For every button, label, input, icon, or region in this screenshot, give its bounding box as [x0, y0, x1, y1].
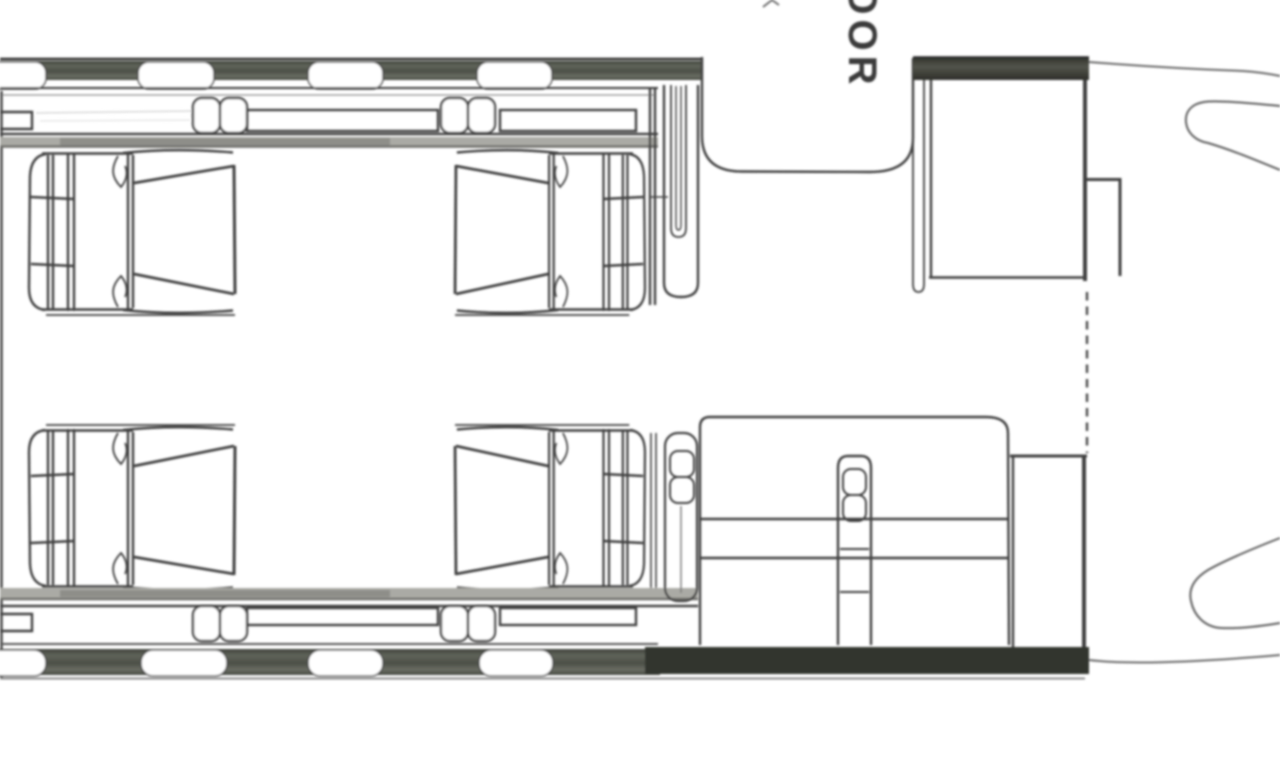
svg-text:DOOR: DOOR [840, 0, 884, 90]
